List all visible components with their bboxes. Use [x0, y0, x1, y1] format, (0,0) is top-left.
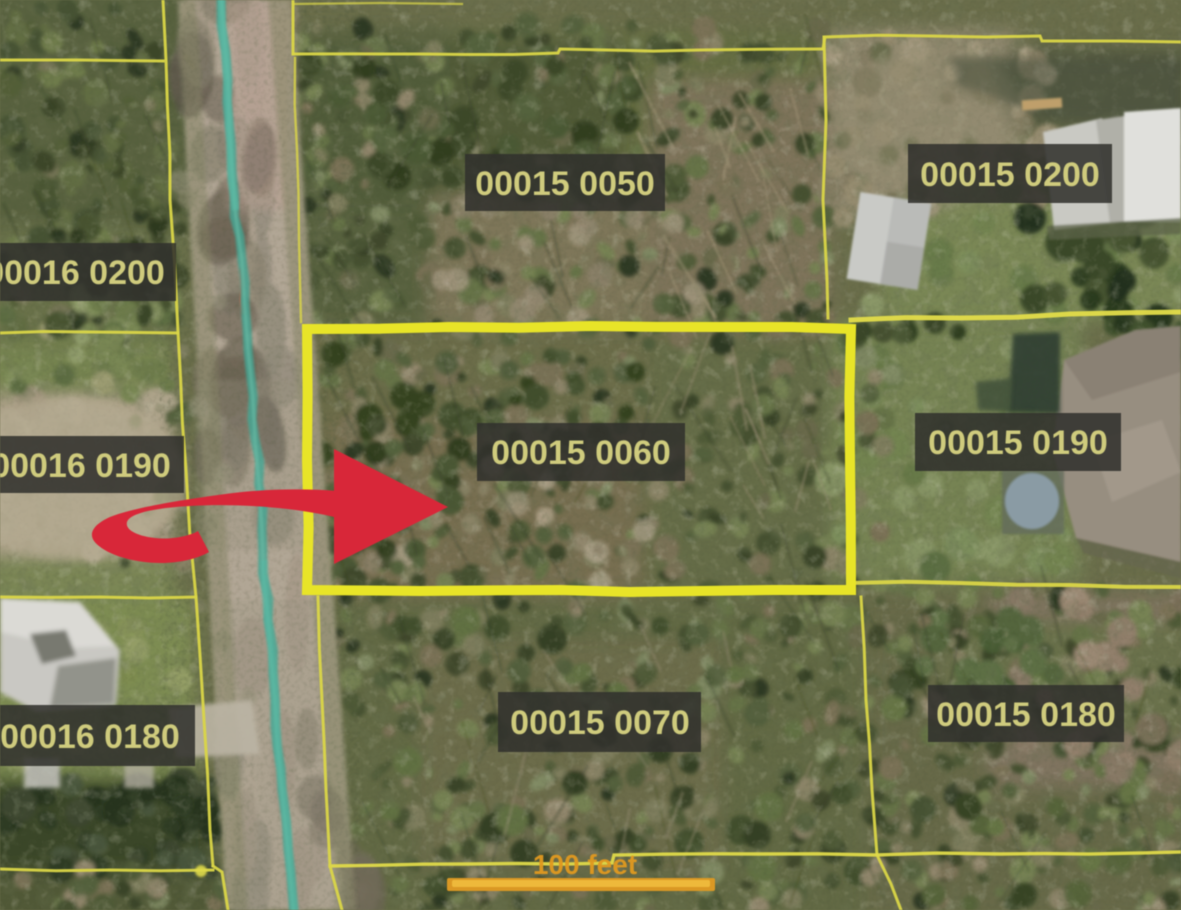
- svg-text:00015 0070: 00015 0070: [510, 704, 690, 742]
- svg-text:00015 0180: 00015 0180: [936, 696, 1116, 734]
- svg-text:100 feet: 100 feet: [533, 849, 637, 880]
- svg-text:00016 0200: 00016 0200: [0, 254, 165, 292]
- svg-text:00016 0190: 00016 0190: [0, 447, 171, 485]
- svg-text:00015 0060: 00015 0060: [491, 434, 671, 472]
- svg-text:00015 0190: 00015 0190: [928, 424, 1108, 462]
- svg-text:00015 0200: 00015 0200: [920, 156, 1100, 194]
- svg-text:00016 0180: 00016 0180: [0, 718, 180, 756]
- svg-text:00015 0050: 00015 0050: [475, 165, 655, 203]
